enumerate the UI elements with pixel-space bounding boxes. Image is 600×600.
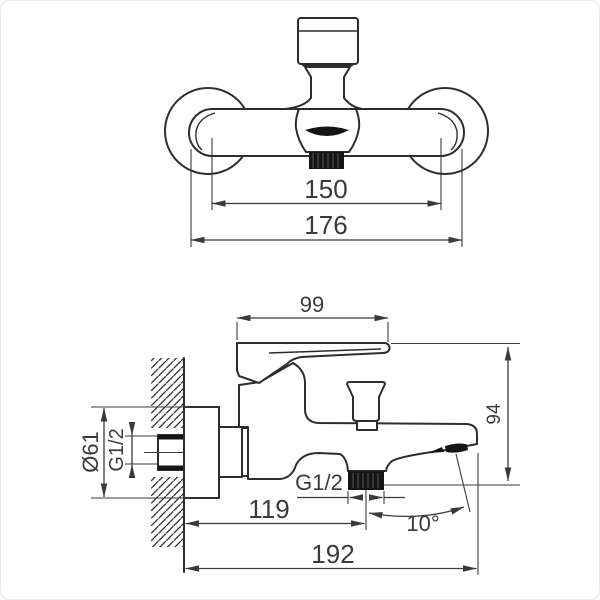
dim-label-outlet-thread: G1/2 (295, 470, 343, 495)
dim-label-99: 99 (300, 292, 324, 317)
body-connector (219, 427, 242, 477)
dim-label-176: 176 (304, 210, 347, 240)
dim-label-inlet-thread: G1/2 (106, 428, 128, 471)
diverter-knob (347, 382, 385, 421)
handle-knob (298, 18, 358, 64)
dim-label-94: 94 (484, 403, 505, 425)
faucet-dimension-drawing: 150 176 (1, 1, 599, 599)
front-view: 150 176 (165, 18, 488, 247)
side-view: 99 94 Ø61 G1/2 G1/2 119 10° (78, 292, 520, 575)
dim-label-escutcheon-diameter: Ø61 (78, 431, 103, 473)
dim-label-angle: 10° (406, 511, 439, 536)
shower-outlet-thread (348, 471, 384, 490)
dim-label-150: 150 (304, 174, 347, 204)
handle-neck (285, 67, 362, 109)
drawing-frame: 150 176 (0, 0, 600, 600)
outlet-thread-front (309, 152, 344, 169)
dim-label-119: 119 (248, 494, 289, 524)
dim-label-192: 192 (311, 539, 354, 569)
escutcheon-side (184, 407, 219, 498)
diverter-knob-base (357, 421, 377, 430)
